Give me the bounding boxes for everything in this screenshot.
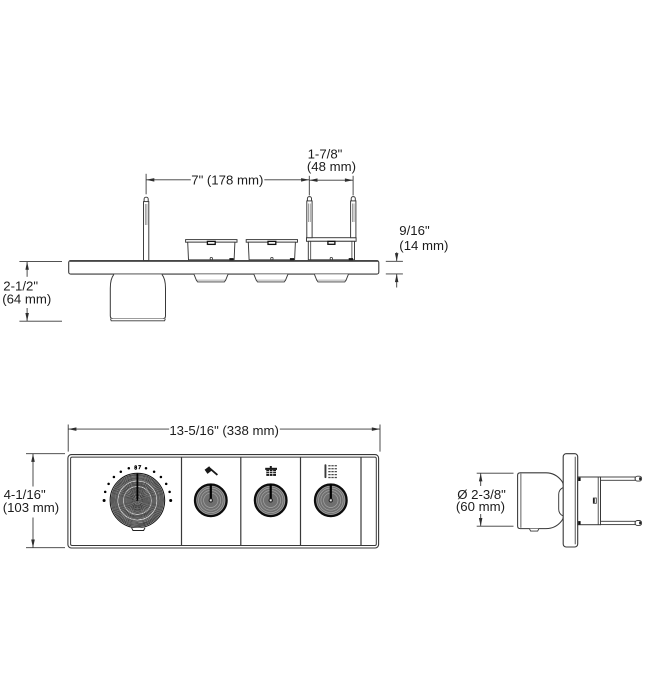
svg-text:(103 mm): (103 mm) <box>3 500 59 515</box>
svg-text:7" (178 mm): 7" (178 mm) <box>191 173 263 188</box>
svg-text:(48 mm): (48 mm) <box>307 159 356 174</box>
svg-text:9/16": 9/16" <box>399 223 430 238</box>
svg-text:(60 mm): (60 mm) <box>456 499 505 514</box>
svg-text:(64 mm): (64 mm) <box>2 291 51 306</box>
svg-text:13-5/16" (338 mm): 13-5/16" (338 mm) <box>169 423 279 438</box>
svg-text:(14 mm): (14 mm) <box>399 238 448 253</box>
